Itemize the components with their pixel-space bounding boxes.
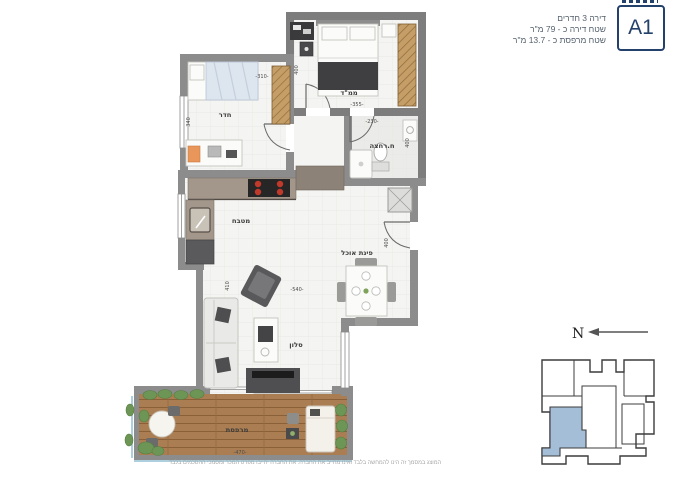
dim-bathroom-depth: 400 <box>405 138 411 148</box>
dim-mamad-width: -355- <box>350 102 363 108</box>
north-arrow: N <box>572 326 648 342</box>
lounge-daybed <box>306 406 335 452</box>
dim-bathroom-width: -230- <box>365 119 378 125</box>
fridge <box>186 240 214 264</box>
dim-living-depth: 410 <box>225 281 231 291</box>
label-balcony: מרפסת <box>226 426 249 434</box>
cooktop <box>248 179 290 197</box>
label-bedroom: חדר <box>219 111 232 119</box>
tv-unit <box>246 368 300 393</box>
floorplan-sheet: דירה 3 חדרים שטח דירה כ - 79 מ"ר שטח מרפ… <box>0 0 678 480</box>
mamad-wardrobe <box>398 24 416 106</box>
building-key-plan <box>542 360 654 464</box>
dim-entry-depth: 400 <box>384 238 390 248</box>
desk <box>186 140 242 166</box>
shaft <box>388 188 412 212</box>
dim-living-width: -540- <box>290 287 303 293</box>
label-bathroom: ח.רחצה <box>369 142 394 150</box>
disclaimer-text: המוצג במסמך זה הינו להמחשה בלבד ואינו מח… <box>105 460 505 466</box>
label-mamad: ממ"ד <box>340 89 357 97</box>
dim-mamad-depth: 400 <box>294 65 300 75</box>
coffee-table <box>254 318 278 362</box>
dining-set <box>337 258 396 326</box>
dim-balcony-width: -470- <box>233 450 246 456</box>
bathroom-sink <box>403 120 417 141</box>
single-bed <box>188 62 258 100</box>
label-kitchen: מטבח <box>232 217 250 225</box>
north-label: N <box>572 326 584 342</box>
dim-bedroom-width: -310- <box>255 74 268 80</box>
double-bed <box>316 20 380 96</box>
label-living: סלון <box>289 341 303 349</box>
north-arrowhead <box>588 328 599 336</box>
sofa <box>204 298 238 388</box>
dim-bedroom-depth: 340 <box>186 117 192 127</box>
shower-tub <box>350 150 372 178</box>
mamad-window <box>290 22 314 40</box>
floorplan-drawing: ממ"ד חדר ח.רחצה מטבח פינת אוכל סלון מרפס… <box>0 0 678 480</box>
label-dining: פינת אוכל <box>341 249 373 257</box>
kitchen-sink <box>186 200 214 240</box>
bedroom-wardrobe <box>272 66 290 124</box>
